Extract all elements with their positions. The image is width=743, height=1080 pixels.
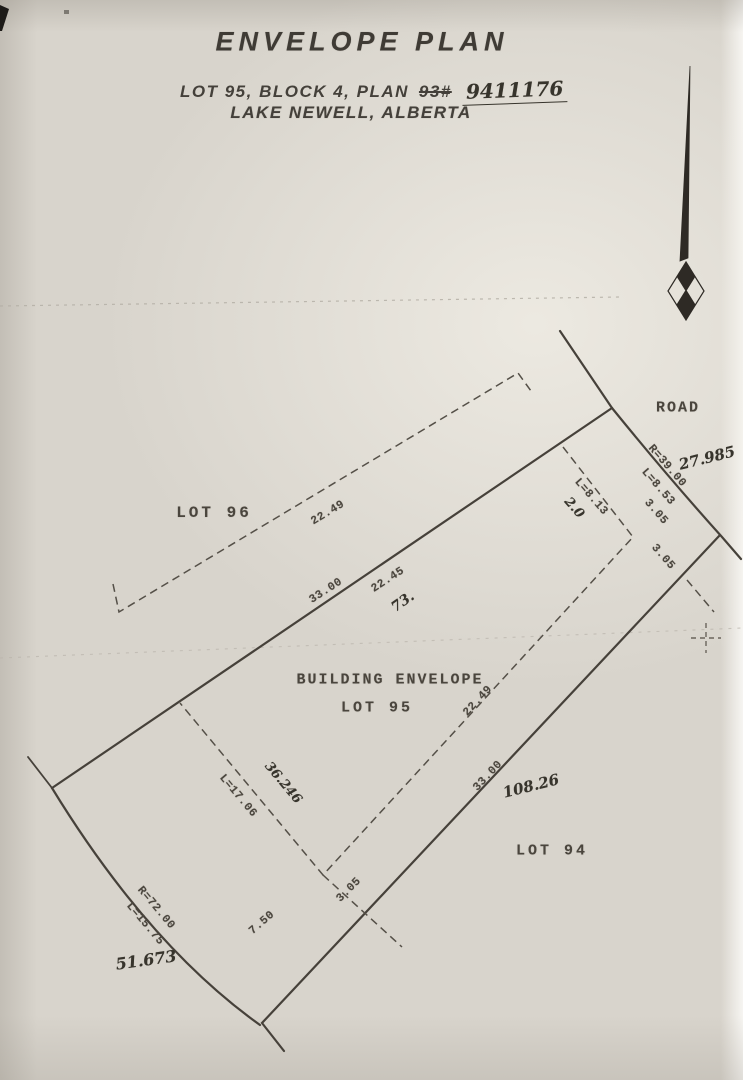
handwritten-plan-number: 9411176 xyxy=(461,76,567,106)
struck-plan-number: 93# xyxy=(419,82,452,102)
road-label: ROAD xyxy=(656,400,700,417)
plan-drawing xyxy=(0,0,743,1080)
lot95-label: LOT 95 xyxy=(341,700,413,717)
location-line: LAKE NEWELL, ALBERTA xyxy=(230,103,471,123)
page-title: ENVELOPE PLAN xyxy=(215,27,508,58)
scan-speck xyxy=(64,10,69,14)
lot94-label: LOT 94 xyxy=(516,843,588,860)
survey-cross-icon xyxy=(691,623,721,653)
fold-line xyxy=(0,628,743,658)
fold-line xyxy=(0,297,620,306)
boundary-extension-line xyxy=(28,757,52,788)
scan-speck xyxy=(0,5,9,31)
north-arrow-icon xyxy=(668,66,704,320)
plan-subtitle: LOT 95, BLOCK 4, PLAN 93# 9411176 xyxy=(180,78,567,104)
lot96-label: LOT 96 xyxy=(176,504,252,522)
road-line xyxy=(560,331,612,408)
lot95-northwest-boundary-line xyxy=(52,408,612,788)
lot94-envelope-dashed-line xyxy=(687,580,714,612)
subtitle-prefix: LOT 95, BLOCK 4, PLAN xyxy=(180,82,409,102)
lot94-lot95-boundary-line xyxy=(262,535,720,1051)
building-envelope-label: BUILDING ENVELOPE xyxy=(296,672,483,689)
scanned-envelope-plan-document: ENVELOPE PLAN LOT 95, BLOCK 4, PLAN 93# … xyxy=(0,0,743,1080)
lot96-envelope-dashed-line xyxy=(113,373,531,612)
